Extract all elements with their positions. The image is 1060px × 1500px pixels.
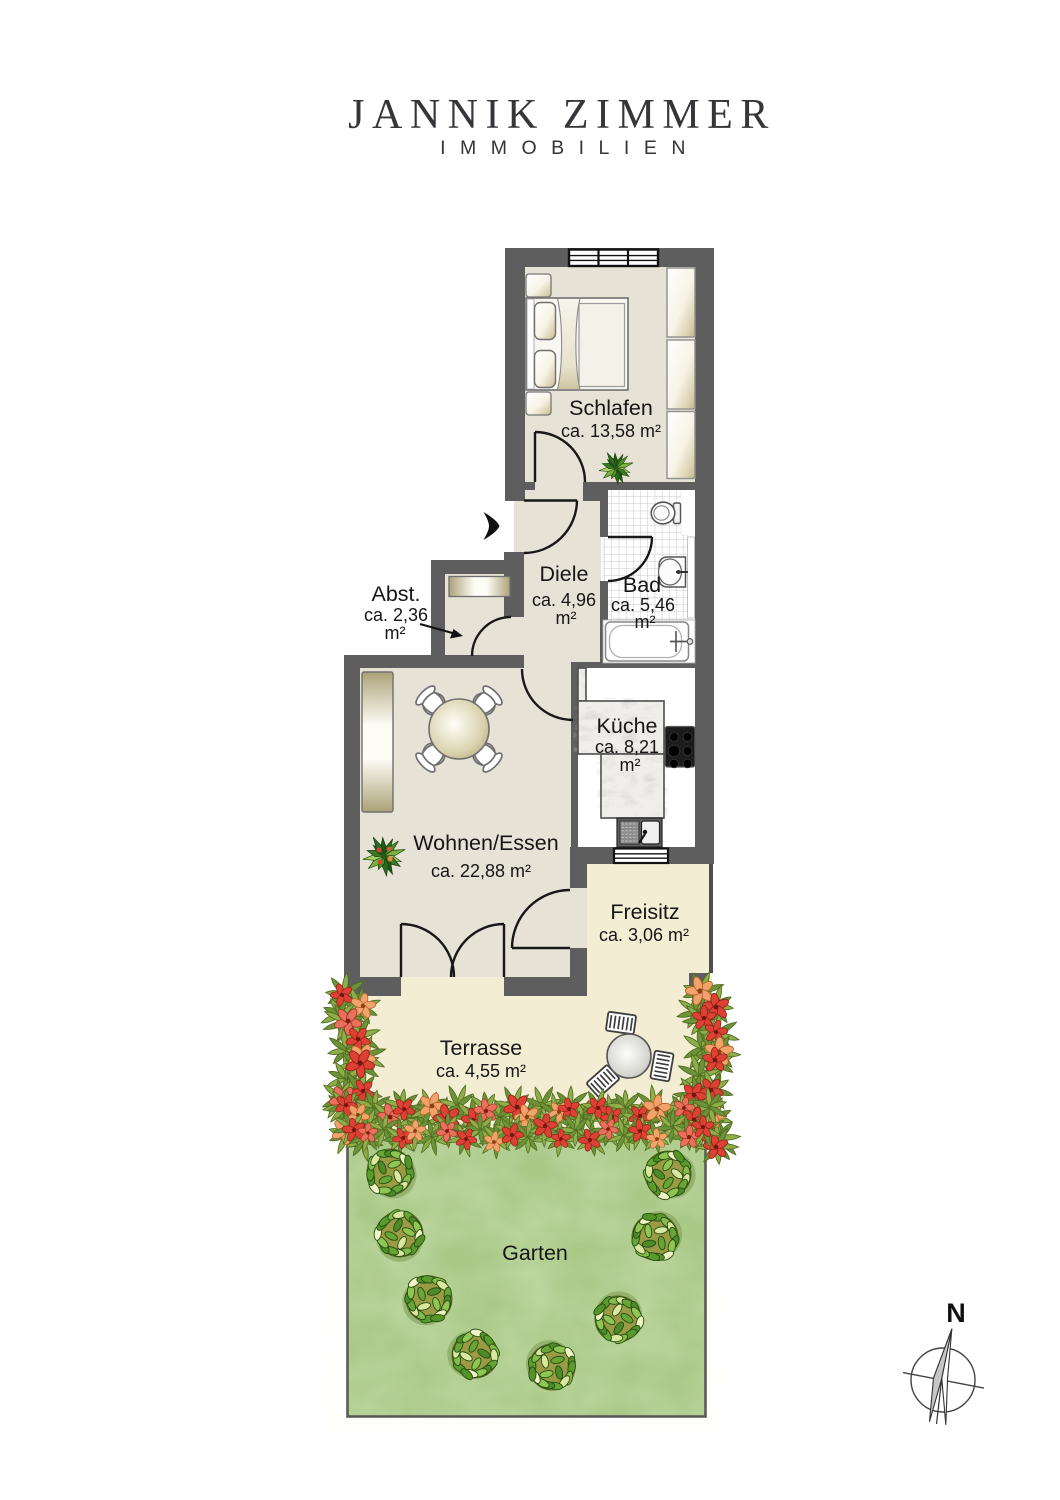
svg-text:ca. 2,36: ca. 2,36: [364, 605, 428, 625]
svg-text:ca. 4,55 m²: ca. 4,55 m²: [436, 1061, 526, 1081]
svg-text:Küche: Küche: [597, 714, 658, 738]
svg-text:Freisitz: Freisitz: [610, 900, 679, 924]
svg-text:Schlafen: Schlafen: [569, 396, 653, 420]
svg-text:ca. 13,58 m²: ca. 13,58 m²: [561, 421, 661, 441]
svg-text:Terrasse: Terrasse: [440, 1036, 522, 1060]
svg-text:N: N: [946, 1298, 966, 1328]
svg-text:Abst.: Abst.: [372, 582, 421, 606]
svg-text:JANNIK ZIMMER: JANNIK ZIMMER: [348, 92, 776, 138]
svg-text:IMMOBILIEN: IMMOBILIEN: [440, 137, 700, 159]
svg-text:Diele: Diele: [540, 562, 589, 586]
svg-text:m²: m²: [385, 623, 406, 643]
svg-text:Wohnen/Essen: Wohnen/Essen: [413, 831, 558, 855]
svg-text:m²: m²: [556, 608, 577, 628]
svg-text:ca. 3,06 m²: ca. 3,06 m²: [599, 925, 689, 945]
svg-text:m²: m²: [635, 612, 656, 632]
svg-text:ca. 22,88 m²: ca. 22,88 m²: [431, 861, 531, 881]
svg-text:Bad: Bad: [623, 573, 661, 597]
svg-text:Garten: Garten: [502, 1241, 568, 1265]
svg-text:ca. 8,21: ca. 8,21: [595, 737, 659, 757]
svg-text:ca. 4,96: ca. 4,96: [532, 590, 596, 610]
svg-text:m²: m²: [620, 755, 641, 775]
